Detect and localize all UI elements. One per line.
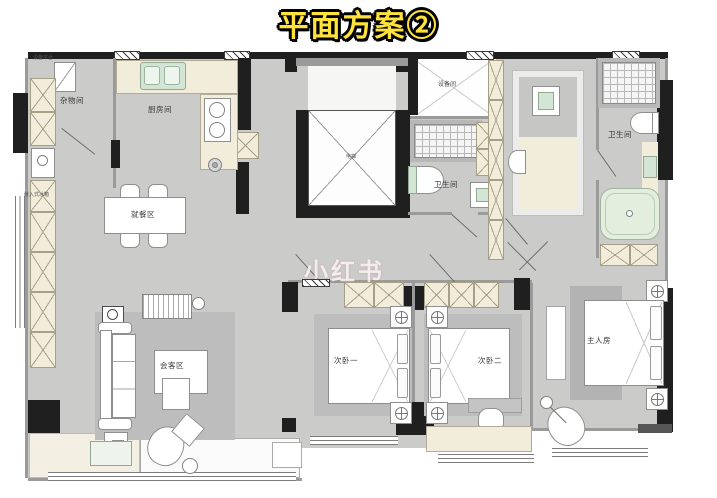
bathroom-master-label: 卫生间: [608, 131, 632, 139]
wall-bed1-bottom-block: [282, 418, 296, 432]
pillow-bed2-b: [430, 368, 441, 398]
wardrobe-bed2-c: [474, 282, 499, 308]
wardrobe-bed2-a: [424, 282, 449, 308]
wall-kitchen-hall-upper: [238, 58, 251, 130]
storage-label: 杂物间: [60, 97, 84, 105]
closet-island-bottom: [519, 137, 577, 209]
dining-label: 就餐区: [131, 211, 155, 219]
fridge-cabinet-2: [30, 252, 56, 292]
wall-right-thin-top: [665, 58, 668, 82]
wardrobe-bed1-a: [344, 282, 374, 308]
storage-appliance-dial-icon: [37, 155, 48, 166]
storage-cabinet-2: [30, 112, 56, 146]
storage-cabinet-1: [30, 78, 56, 112]
window-hatch-bed1: [302, 279, 330, 287]
kitchen-label: 厨房间: [148, 106, 172, 114]
sofa-arm-bottom: [98, 418, 132, 430]
wardrobe-master: [546, 306, 566, 380]
bedroom1-label: 次卧一: [334, 357, 358, 365]
window-seat-bed2: [426, 426, 532, 452]
closet-table-mat: [538, 92, 554, 110]
page-title: 平面方案②: [0, 1, 717, 45]
closet-stool: [508, 150, 526, 174]
wall-elevator-bottom: [296, 206, 410, 218]
master-bath-cabinet-2: [630, 244, 658, 266]
fridge-cabinet-1: [30, 212, 56, 252]
wall-elevator-left: [296, 110, 308, 218]
master-bedroom-label: 主人房: [587, 337, 611, 345]
bathtub-drain-icon: [626, 210, 633, 217]
window-living-bottom: [48, 472, 296, 481]
elevator-lobby-floor: [308, 66, 396, 110]
kitchen-sink-basin-2: [164, 66, 180, 85]
stove-burner-icon-2: [209, 122, 225, 138]
fridge-cabinet-4: [30, 332, 56, 368]
closet-cabinet-3: [488, 140, 504, 180]
toilet-master: [630, 112, 654, 134]
wall-bottomleft-block: [28, 400, 60, 433]
pillow-bed2-a: [430, 334, 441, 364]
closet-cabinet-4: [488, 180, 504, 220]
equipment-platform-label: 设备平台: [33, 56, 53, 61]
wall-corner-bottom-right: [638, 424, 672, 433]
pillow-master-b: [650, 346, 662, 380]
living-label: 会客区: [160, 362, 184, 370]
bathroom-middle-label: 卫生间: [434, 181, 458, 189]
floor-plan-canvas: 电梯 设备间 卫生间 设备平台 杂物间 嵌入: [0, 0, 717, 498]
wall-right-thin-mid: [665, 180, 668, 288]
side-round-table: [182, 458, 198, 474]
window-master: [552, 448, 648, 457]
bedroom2-label: 次卧二: [478, 357, 502, 365]
kitchen-sink-basin-1: [144, 66, 160, 85]
nightstand-bed1-top: [390, 306, 412, 328]
stove-burner-icon-1: [209, 102, 225, 118]
nightstand-bed2-bottom: [426, 402, 448, 424]
record-player-disc-icon: [107, 309, 118, 320]
wall-storage-kitchen-block: [111, 140, 120, 168]
window-bed1: [310, 436, 398, 445]
wall-elevator-top-band: [296, 58, 410, 66]
terrace-step: [272, 442, 302, 468]
window-hatch-top-3: [466, 51, 494, 60]
shower-master: [602, 62, 656, 104]
wall-bath-mid-top: [410, 116, 500, 119]
dining-chair-4: [148, 233, 168, 248]
piano-stool: [192, 297, 205, 310]
wardrobe-bed2-b: [449, 282, 474, 308]
wall-bed2-corner: [514, 278, 530, 310]
plant-center-icon: [212, 162, 218, 168]
dining-chair-3: [120, 233, 140, 248]
pillow-bed1-b: [397, 368, 408, 398]
wall-bed1-corner: [282, 282, 298, 312]
storage-shelf: [54, 62, 76, 92]
sink-mid-counter: [408, 166, 417, 194]
window-hatch-top-1: [114, 51, 140, 60]
wardrobe-bed1-b: [374, 282, 404, 308]
master-bath-cabinet-1: [600, 244, 630, 266]
closet-cabinet-5: [488, 220, 504, 260]
sofa-back: [100, 330, 112, 422]
coffee-table-small: [162, 378, 190, 410]
wall-bath-mid-bottom-a: [408, 212, 452, 215]
closet-cabinet-1: [488, 60, 504, 100]
balcony-sink: [90, 441, 132, 466]
elevator-label: 电梯: [346, 155, 356, 160]
nightstand-master-top: [646, 280, 668, 302]
nightstand-bed2-top: [426, 306, 448, 328]
sink-master: [643, 156, 657, 178]
desk-chair-bed2: [478, 408, 504, 428]
keyboard-piano: [142, 294, 192, 319]
wall-bed2-master-divider: [530, 283, 533, 430]
fridge-cabinet-3: [30, 292, 56, 332]
pillow-bed1-a: [397, 334, 408, 364]
toilet-master-tank: [652, 112, 659, 134]
equipment-room-marking: [418, 62, 490, 114]
built-in-fridge-label: 嵌入式冰箱: [24, 193, 49, 198]
pillow-master-a: [650, 306, 662, 340]
wall-equipment-left: [408, 55, 418, 115]
window-bed2: [438, 454, 534, 463]
wall-left-black: [13, 93, 28, 153]
wall-elevator-right: [396, 110, 410, 218]
nightstand-bed1-bottom: [390, 402, 412, 424]
closet-cabinet-2: [488, 100, 504, 140]
window-left: [15, 196, 25, 328]
nightstand-master-bottom: [646, 388, 668, 410]
equipment-room-label: 设备间: [438, 82, 456, 88]
shower-mid: [414, 124, 478, 158]
sofa-seat: [112, 334, 136, 418]
wall-closet-bath-lower: [596, 180, 599, 258]
